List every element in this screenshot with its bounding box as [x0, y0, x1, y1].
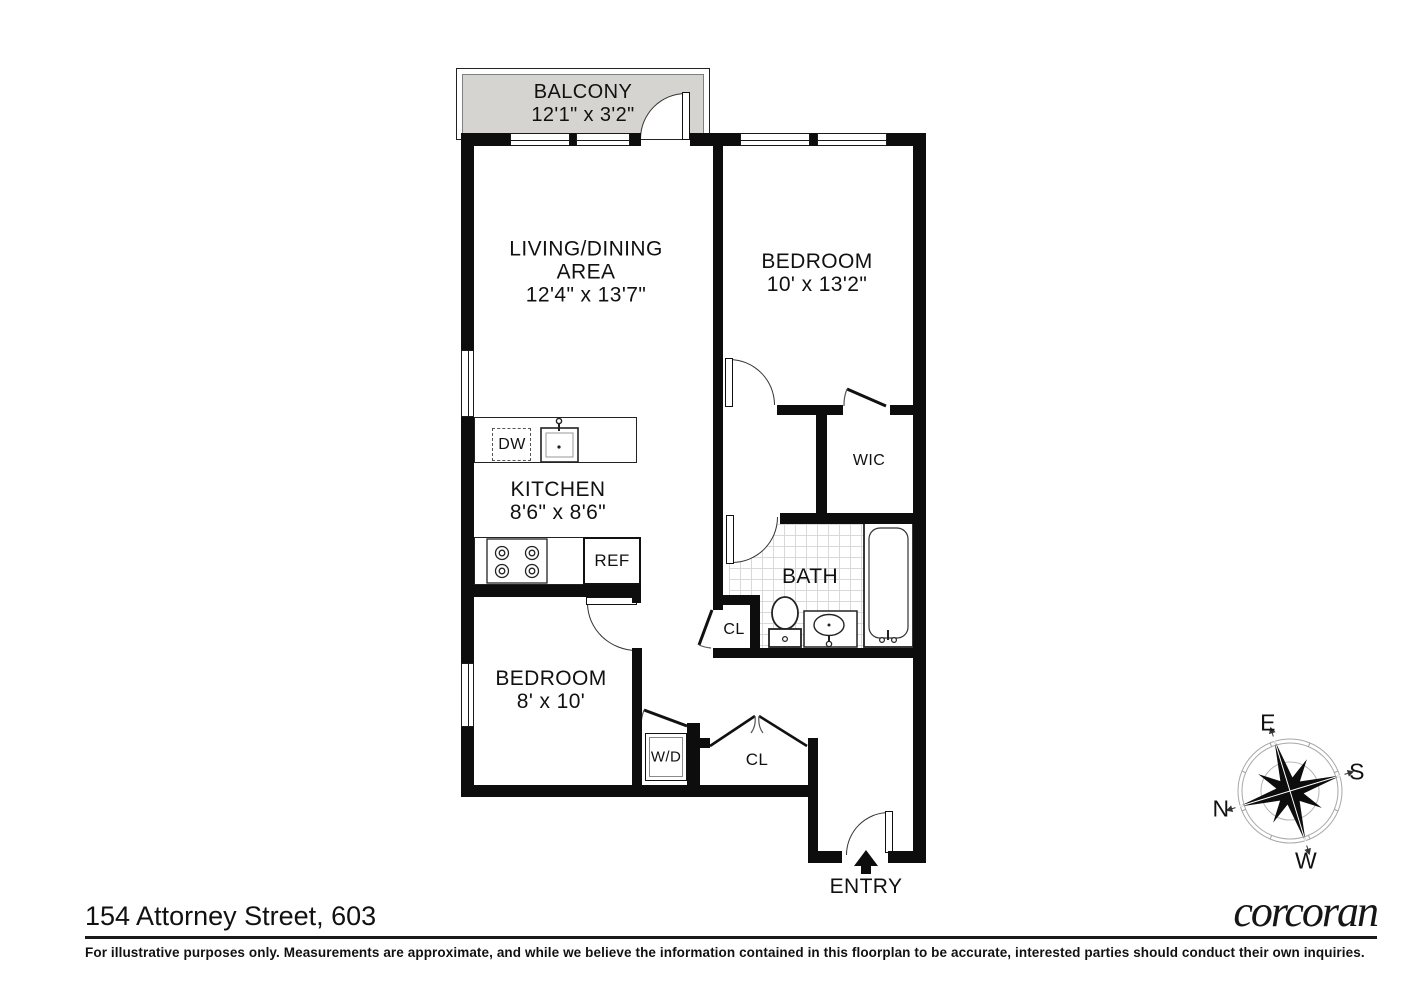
label-balcony: BALCONY 12'1" x 3'2": [531, 81, 634, 127]
wall-segment: [808, 738, 818, 863]
entry-arrow-icon: [854, 850, 878, 874]
wall-segment: [750, 595, 760, 658]
window: [461, 350, 474, 417]
bedroom2-name: BEDROOM: [495, 667, 606, 690]
washer-dryer-door: [641, 710, 687, 726]
page-title: 154 Attorney Street, 603: [85, 901, 376, 932]
label-closet-hall: CL: [746, 750, 769, 770]
bedroom2-door-leaf: [586, 597, 637, 605]
label-entry: ENTRY: [830, 875, 903, 899]
wall-segment: [632, 585, 641, 603]
compass-rose-icon: [1208, 709, 1373, 874]
bath-door-leaf: [726, 515, 734, 564]
wall-segment: [777, 405, 843, 415]
living-name-2: AREA: [509, 261, 662, 284]
bedroom2-dims: 8' x 10': [495, 690, 606, 713]
stove: [487, 539, 547, 583]
wall-segment: [780, 513, 926, 524]
label-kitchen: KITCHEN 8'6" x 8'6": [510, 478, 606, 524]
window: [576, 133, 630, 146]
wall-segment: [690, 133, 740, 146]
window: [461, 663, 474, 727]
wall-segment: [461, 133, 474, 350]
label-bedroom2: BEDROOM 8' x 10': [495, 667, 606, 713]
wall-segment: [713, 648, 926, 658]
bedroom1-door-leaf: [725, 358, 733, 407]
label-wd: W/D: [651, 749, 681, 766]
window: [510, 133, 570, 146]
wall-segment: [810, 133, 817, 146]
fixtures-overlay: [0, 0, 1415, 1000]
wall-segment: [713, 146, 723, 405]
label-ref: REF: [594, 551, 629, 571]
balcony-name: BALCONY: [531, 81, 634, 104]
label-living: LIVING/DINING AREA 12'4" x 13'7": [509, 238, 662, 307]
wall-segment: [700, 738, 710, 748]
balcony-door-leaf: [682, 92, 690, 140]
living-name-1: LIVING/DINING: [509, 238, 662, 261]
wall-segment: [630, 133, 641, 146]
kitchen-name: KITCHEN: [510, 478, 606, 501]
bedroom1-dims: 10' x 13'2": [761, 273, 872, 296]
bathroom-sink: [804, 611, 857, 647]
bedroom1-name: BEDROOM: [761, 250, 872, 273]
label-bath: BATH: [782, 565, 838, 589]
footer-divider: [85, 936, 1377, 939]
compass-label-w: W: [1295, 848, 1317, 875]
bath-closet-door: [699, 610, 712, 648]
kitchen-sink: [541, 418, 578, 462]
label-closet-bath: CL: [723, 621, 744, 639]
compass-label-s: S: [1349, 759, 1365, 786]
compass-label-n: N: [1212, 796, 1229, 823]
disclaimer-text: For illustrative purposes only. Measurem…: [85, 945, 1385, 960]
wall-segment: [808, 851, 842, 863]
compass-label-e: E: [1260, 710, 1276, 737]
wall-segment: [461, 585, 641, 597]
hall-closet-doors: [710, 716, 807, 746]
window: [740, 133, 810, 146]
wall-segment: [687, 723, 700, 788]
wall-segment: [890, 405, 926, 415]
corcoran-logo: corcoran: [1233, 886, 1377, 937]
wall-segment: [632, 648, 642, 797]
living-dims: 12'4" x 13'7": [509, 284, 662, 307]
kitchen-dims: 8'6" x 8'6": [510, 501, 606, 524]
window: [817, 133, 887, 146]
label-bedroom1: BEDROOM 10' x 13'2": [761, 250, 872, 296]
label-dw: DW: [498, 436, 525, 454]
balcony-dims: 12'1" x 3'2": [531, 104, 634, 127]
wic-door: [844, 389, 886, 406]
floorplan-page: BALCONY 12'1" x 3'2" LIVING/DINING AREA …: [0, 0, 1415, 1000]
wall-segment: [816, 415, 827, 513]
toilet: [769, 597, 801, 647]
wall-segment: [713, 405, 723, 610]
wall-segment: [888, 851, 926, 863]
wall-segment: [461, 417, 474, 663]
bathtub: [864, 523, 913, 647]
wall-segment: [913, 133, 926, 863]
label-wic: WIC: [853, 452, 885, 470]
entry-door-leaf: [885, 811, 893, 853]
